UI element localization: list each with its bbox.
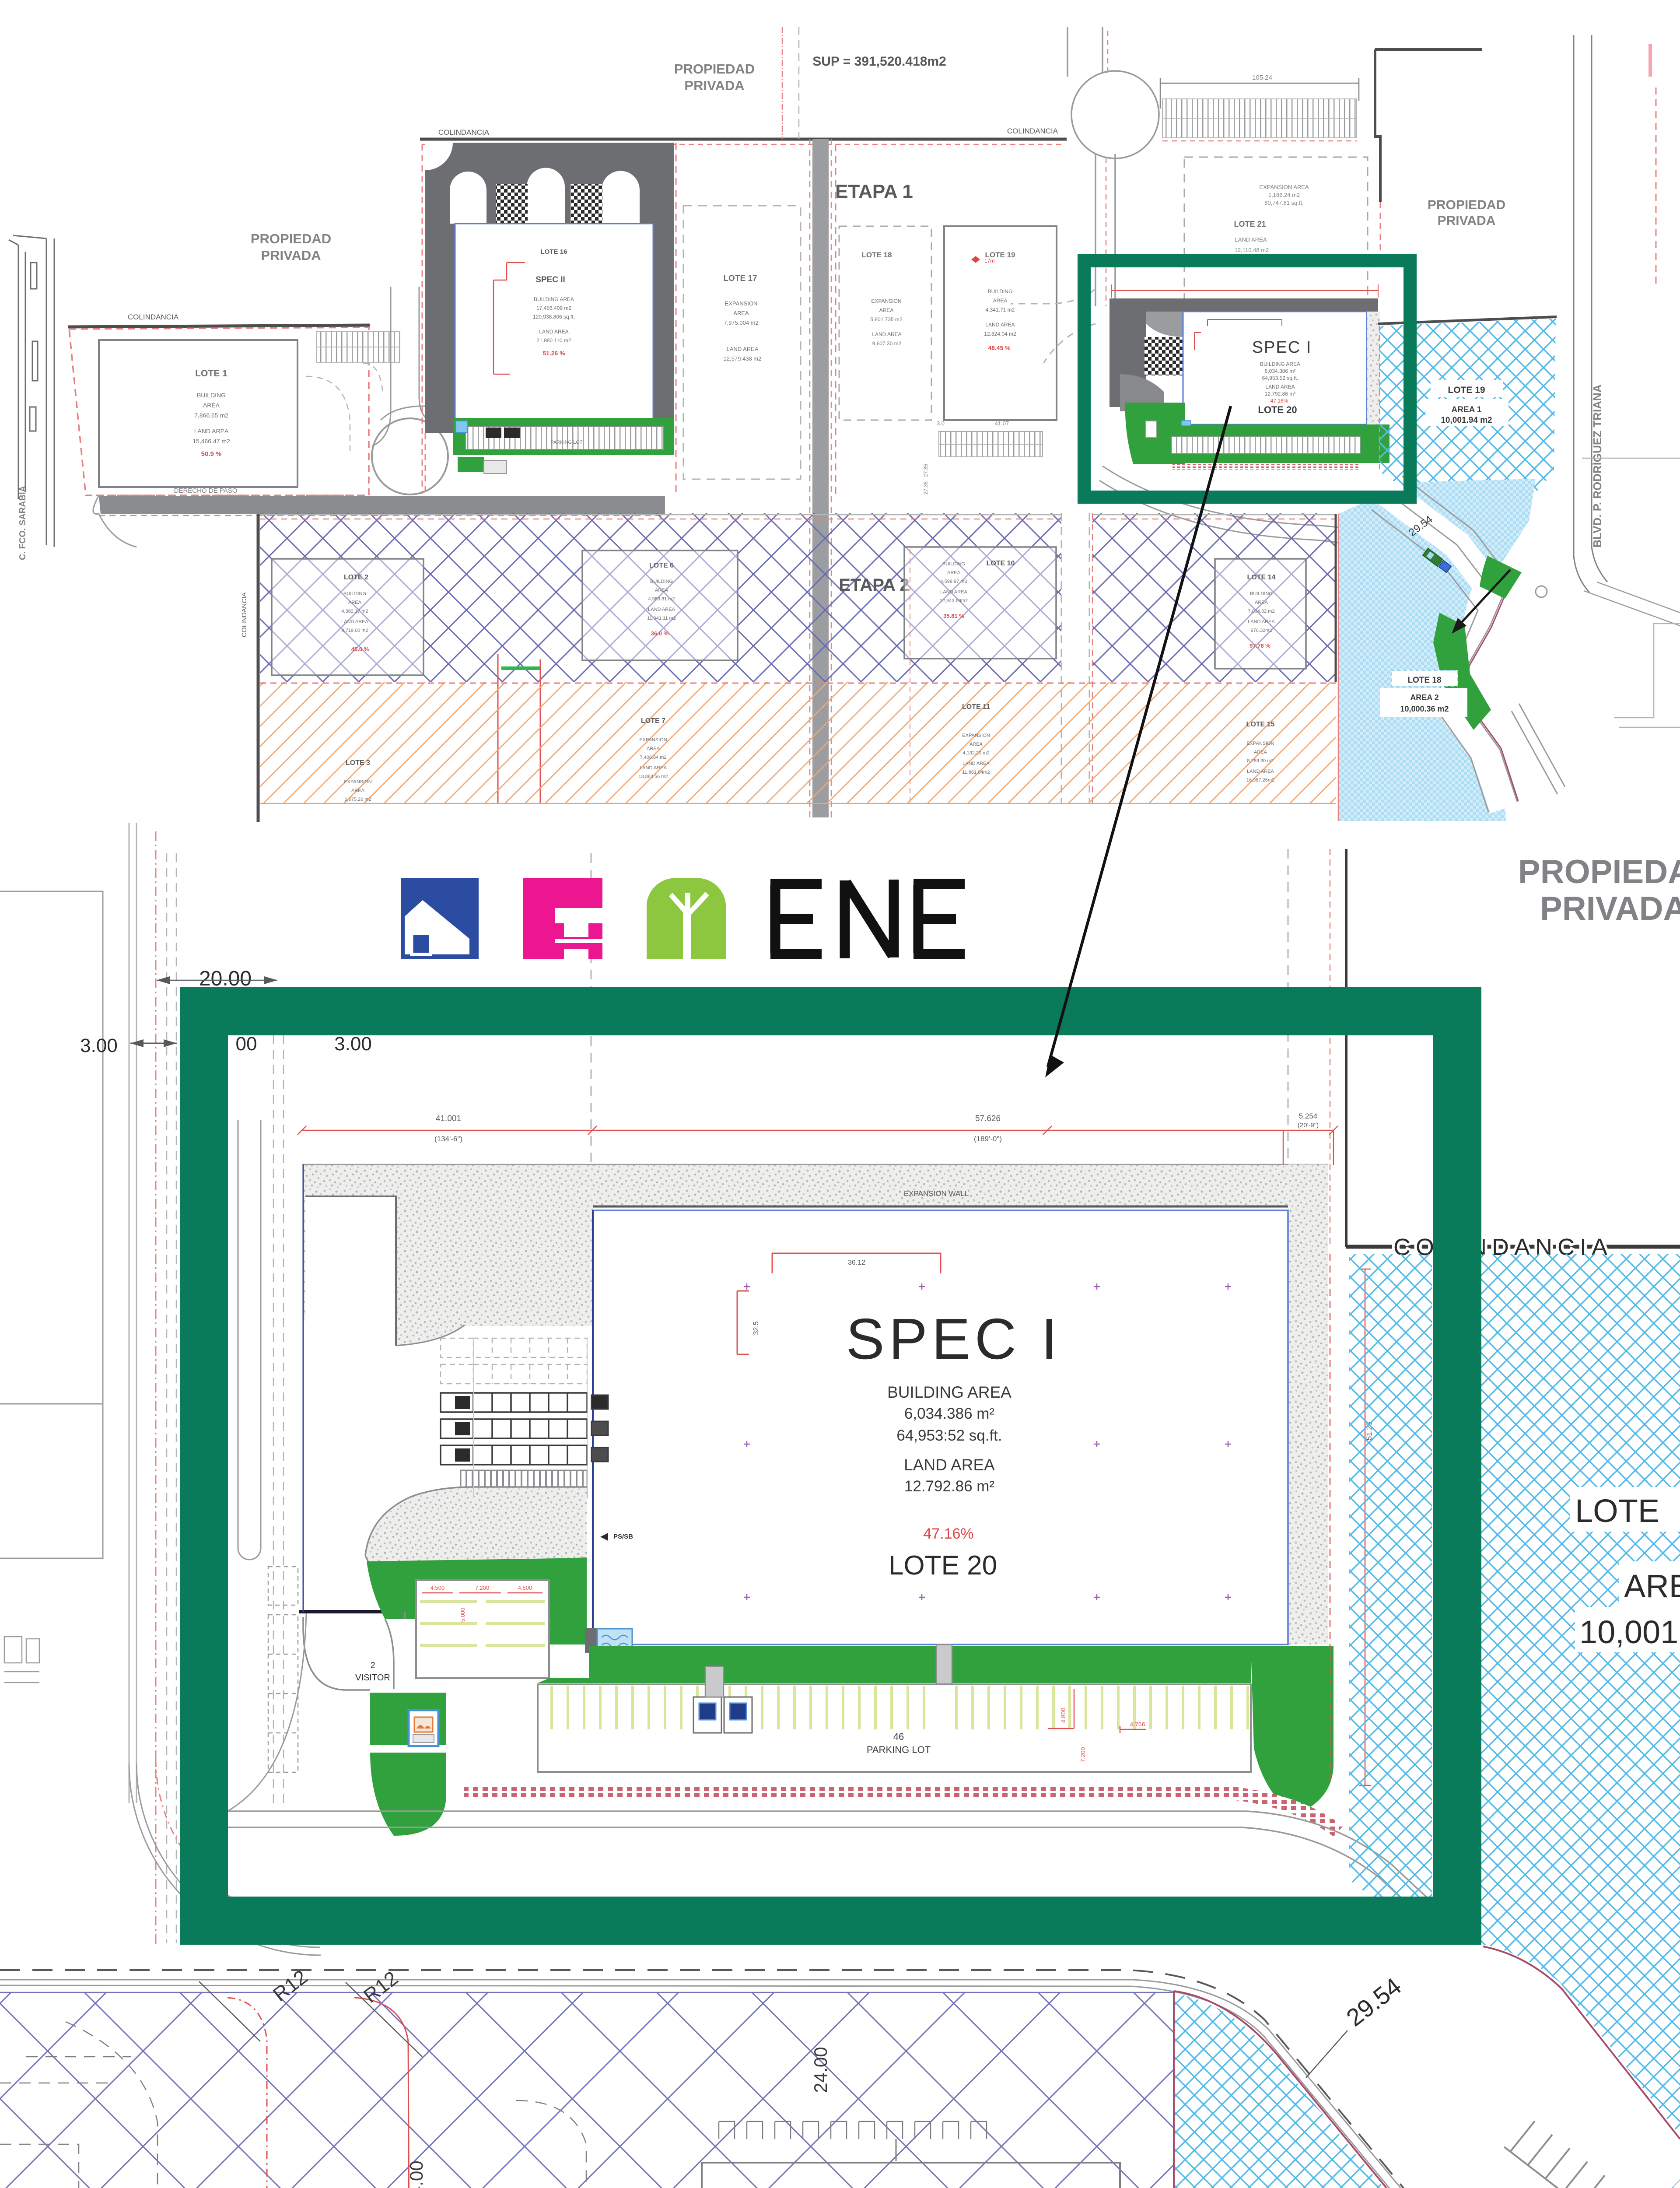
svg-text:47.16%: 47.16% [1270, 398, 1288, 404]
svg-text:3.00: 3.00 [334, 1033, 372, 1055]
svg-text:5.254: 5.254 [1299, 1112, 1318, 1120]
svg-text:LAND AREA: LAND AREA [194, 428, 229, 435]
svg-text:5,601.735 m2: 5,601.735 m2 [870, 316, 903, 323]
svg-text:ETAPA 1: ETAPA 1 [835, 181, 913, 202]
svg-text:PRIVADA: PRIVADA [261, 248, 321, 263]
svg-text:VISITOR: VISITOR [355, 1673, 390, 1683]
svg-text:AREA: AREA [1255, 600, 1268, 605]
svg-text:7,975.004 m2: 7,975.004 m2 [724, 319, 759, 326]
svg-text:80,747.81 sq.ft.: 80,747.81 sq.ft. [1264, 200, 1304, 206]
svg-text:4,132.20 m2: 4,132.20 m2 [962, 750, 989, 756]
svg-text:36.12: 36.12 [848, 1259, 865, 1266]
svg-text:97.78 %: 97.78 % [1249, 642, 1270, 649]
svg-text:PROPIEDAD: PROPIEDAD [1518, 853, 1680, 891]
svg-text:PRIVADA: PRIVADA [684, 78, 744, 93]
svg-text:3.00: 3.00 [80, 1035, 118, 1056]
svg-text:PARKING LOT: PARKING LOT [867, 1744, 931, 1755]
svg-text:1,186.24 m2: 1,186.24 m2 [1268, 192, 1300, 198]
svg-text:4.500: 4.500 [430, 1585, 445, 1591]
svg-text:EXPANSION: EXPANSION [344, 779, 371, 785]
svg-text:976.32m2: 976.32m2 [1251, 628, 1272, 633]
svg-text:57.626: 57.626 [975, 1114, 1001, 1123]
svg-text:35.81 %: 35.81 % [943, 613, 964, 619]
svg-text:41.001: 41.001 [436, 1114, 461, 1123]
svg-text:PROPIEDAD: PROPIEDAD [674, 61, 755, 77]
svg-text:13,883.56 m2: 13,883.56 m2 [638, 774, 668, 779]
svg-text:00: 00 [236, 1033, 257, 1055]
svg-text:LAND AREA: LAND AREA [539, 329, 568, 335]
svg-text:LOTE 15: LOTE 15 [1246, 721, 1275, 728]
svg-text:5.000: 5.000 [459, 1608, 466, 1622]
svg-text:SPEC I: SPEC I [846, 1307, 1062, 1371]
svg-text:DERECHO DE PASO: DERECHO DE PASO [174, 487, 238, 494]
svg-text:17m: 17m [984, 258, 994, 264]
svg-text:10,001.94 m2: 10,001.94 m2 [1441, 416, 1492, 425]
svg-text:9,607.30 m2: 9,607.30 m2 [872, 340, 902, 347]
svg-text:AREA: AREA [1254, 750, 1267, 755]
svg-text:AREA: AREA [879, 307, 894, 313]
svg-text:LOTE 17: LOTE 17 [723, 274, 757, 283]
svg-text:LAND AREA: LAND AREA [1247, 769, 1274, 774]
svg-text:AREA: AREA [203, 402, 220, 409]
svg-text:LAND AREA: LAND AREA [985, 322, 1015, 328]
svg-text:BLVD. P. RODRÍGUEZ TRIANA: BLVD. P. RODRÍGUEZ TRIANA [1591, 384, 1604, 547]
svg-text:LOTE 21: LOTE 21 [1234, 220, 1266, 228]
svg-text:AREA 2: AREA 2 [1410, 693, 1438, 702]
svg-text:PARKING LOT: PARKING LOT [550, 440, 582, 445]
svg-text:4.800: 4.800 [1060, 1708, 1067, 1723]
svg-text:6,034.386 m²: 6,034.386 m² [904, 1405, 994, 1422]
svg-text:7,004.32 m2: 7,004.32 m2 [1248, 609, 1274, 614]
svg-text:BUILDING AREA: BUILDING AREA [534, 296, 574, 302]
svg-text:EXPANSION WALL: EXPANSION WALL [904, 1189, 969, 1198]
svg-text:16,987.26m2: 16,987.26m2 [1246, 778, 1274, 783]
svg-text:BUILDING: BUILDING [197, 392, 226, 399]
svg-text:6,034.386 m²: 6,034.386 m² [1265, 368, 1296, 374]
svg-text:BUILDING: BUILDING [343, 591, 366, 596]
svg-text:AREA: AREA [351, 788, 365, 793]
svg-text:COLINDANCIA: COLINDANCIA [241, 593, 248, 638]
svg-text:15,466.47 m2: 15,466.47 m2 [192, 438, 230, 445]
svg-text:SUP = 391,520.418m2: SUP = 391,520.418m2 [812, 54, 946, 69]
svg-text:LAND AREA: LAND AREA [640, 765, 667, 771]
svg-text:50.9 %: 50.9 % [201, 450, 222, 458]
svg-text:LOTE 3: LOTE 3 [346, 759, 370, 767]
svg-text:7.200: 7.200 [475, 1585, 490, 1591]
svg-text:AREA: AREA [969, 742, 983, 747]
svg-text:LAND AREA: LAND AREA [904, 1456, 995, 1474]
svg-text:24.00: 24.00 [810, 2047, 831, 2093]
svg-text:PS/SB: PS/SB [613, 1533, 633, 1540]
svg-text:36.0 %: 36.0 % [651, 630, 669, 637]
svg-text:LOTE 20: LOTE 20 [889, 1550, 997, 1581]
svg-text:12.792.86 m²: 12.792.86 m² [904, 1478, 994, 1495]
svg-text:EXPANSION: EXPANSION [639, 737, 667, 743]
svg-text:41.07: 41.07 [995, 420, 1009, 427]
svg-text:(189'-0"): (189'-0") [974, 1135, 1002, 1143]
svg-text:BUILDING: BUILDING [650, 579, 673, 584]
svg-text:LOTE 11: LOTE 11 [962, 703, 990, 711]
svg-text:EXPANSION: EXPANSION [871, 298, 901, 304]
svg-text:ETAPA 2: ETAPA 2 [839, 575, 910, 595]
svg-text:AREA 1: AREA 1 [1452, 405, 1482, 414]
svg-text:COLINDANCIA: COLINDANCIA [1007, 127, 1058, 135]
svg-text:64,953:52 sq.ft.: 64,953:52 sq.ft. [896, 1427, 1002, 1444]
svg-text:12,792.86 m²: 12,792.86 m² [1265, 391, 1296, 397]
svg-text:4.500: 4.500 [518, 1585, 532, 1591]
svg-text:4.766: 4.766 [1130, 1721, 1145, 1728]
svg-text:EXPANSION: EXPANSION [725, 300, 758, 307]
svg-text:3.0: 3.0 [937, 420, 945, 427]
svg-text:4,598.97 m2: 4,598.97 m2 [940, 579, 967, 584]
svg-text:LAND AREA: LAND AREA [1265, 384, 1295, 390]
svg-text:105.24: 105.24 [1252, 74, 1272, 81]
svg-text:AREA: AREA [733, 310, 749, 316]
svg-text:7,866.65 m2: 7,866.65 m2 [194, 412, 228, 419]
svg-text:4,382.17 m2: 4,382.17 m2 [341, 609, 368, 614]
svg-text:48.45 %: 48.45 % [988, 344, 1011, 351]
svg-text:AREA: AREA [1624, 1568, 1680, 1604]
svg-text:PROPIEDAD: PROPIEDAD [1428, 198, 1505, 212]
svg-text:46: 46 [893, 1731, 904, 1742]
svg-text:27.35: 27.35 [923, 464, 929, 477]
svg-text:LOTE 2: LOTE 2 [344, 574, 368, 581]
svg-text:BUILDING: BUILDING [942, 561, 965, 567]
svg-text:AREA: AREA [647, 746, 660, 751]
svg-text:LAND AREA: LAND AREA [648, 607, 675, 612]
svg-text:COLINDANCIA: COLINDANCIA [438, 128, 490, 137]
svg-text:120,938.806 sq.ft.: 120,938.806 sq.ft. [533, 314, 575, 320]
svg-text:(20'-9"): (20'-9") [1298, 1122, 1319, 1129]
svg-text:4,989.81 m2: 4,989.81 m2 [648, 596, 675, 602]
svg-text:BUILDING: BUILDING [1250, 591, 1273, 596]
svg-text:LOTE 19: LOTE 19 [1448, 385, 1485, 395]
svg-text:AREA: AREA [348, 600, 362, 605]
svg-text:20.00: 20.00 [199, 967, 252, 990]
svg-text:LOTE: LOTE [1575, 1493, 1659, 1529]
svg-text:LOTE 7: LOTE 7 [641, 717, 665, 725]
svg-text:LAND AREA: LAND AREA [341, 619, 368, 624]
svg-text:BUILDING AREA: BUILDING AREA [1260, 361, 1300, 367]
svg-text:51.26 %: 51.26 % [542, 350, 565, 357]
svg-text:LAND AREA: LAND AREA [727, 346, 759, 352]
svg-text:LAND AREA: LAND AREA [872, 331, 901, 337]
svg-text:BUILDING: BUILDING [988, 288, 1013, 295]
svg-text:SPEC I: SPEC I [1252, 338, 1312, 357]
svg-text:4,341.71 m2: 4,341.71 m2 [986, 307, 1015, 313]
svg-text:9,719.00 m2: 9,719.00 m2 [341, 628, 368, 633]
svg-text:(134'-6"): (134'-6") [434, 1135, 462, 1143]
svg-text:LOTE 1: LOTE 1 [195, 368, 227, 379]
svg-text:C. FCO. SARABIA: C. FCO. SARABIA [18, 486, 28, 560]
svg-text:11,041.11 m2: 11,041.11 m2 [647, 616, 676, 621]
svg-text:AREA: AREA [655, 588, 668, 593]
svg-text:12,110.48 m2: 12,110.48 m2 [1235, 247, 1269, 253]
svg-text:BUILDING AREA: BUILDING AREA [887, 1383, 1011, 1401]
svg-text:EXPANSION: EXPANSION [962, 733, 990, 738]
svg-text:21,980.110 m2: 21,980.110 m2 [536, 337, 571, 344]
svg-text:7,406.84 m2: 7,406.84 m2 [640, 755, 666, 760]
svg-text:LOTE 14: LOTE 14 [1247, 574, 1276, 581]
svg-text:LAND AREA: LAND AREA [962, 761, 990, 766]
svg-text:AREA: AREA [947, 570, 961, 575]
svg-text:EXPANSION AREA: EXPANSION AREA [1259, 184, 1309, 190]
svg-text:27.35: 27.35 [923, 481, 929, 494]
svg-text:LAND AREA: LAND AREA [1235, 236, 1267, 243]
svg-text:10,000.36 m2: 10,000.36 m2 [1400, 705, 1449, 713]
svg-text:LAND AREA: LAND AREA [1248, 619, 1275, 624]
svg-text:LAND AREA: LAND AREA [940, 589, 967, 595]
svg-text:45.0 %: 45.0 % [351, 646, 369, 652]
svg-text:COLINDANCIA: COLINDANCIA [128, 313, 179, 321]
svg-text:LOTE 18: LOTE 18 [1407, 676, 1441, 685]
svg-text:17,456.409 m2: 17,456.409 m2 [536, 305, 571, 311]
svg-text:SPEC II: SPEC II [535, 275, 565, 284]
svg-text:7.200: 7.200 [1079, 1747, 1086, 1762]
svg-text:12,579.438 m2: 12,579.438 m2 [724, 355, 762, 362]
svg-text:EXPANSION: EXPANSION [1246, 741, 1274, 746]
svg-text:PROPIEDAD: PROPIEDAD [251, 231, 331, 246]
svg-text:12,843.69m2: 12,843.69m2 [940, 598, 968, 603]
svg-text:64,953.52 sq.ft.: 64,953.52 sq.ft. [1262, 375, 1298, 381]
svg-text:PRIVADA: PRIVADA [1540, 890, 1680, 927]
svg-text:6,675.26 m2: 6,675.26 m2 [344, 797, 371, 802]
svg-text:LOTE 6: LOTE 6 [649, 562, 674, 569]
svg-text:24.00: 24.00 [406, 2160, 427, 2188]
svg-text:LOTE 18: LOTE 18 [862, 251, 892, 259]
svg-text:8,269.30 m2: 8,269.30 m2 [1247, 758, 1274, 764]
svg-text:LOTE 10: LOTE 10 [987, 560, 1015, 567]
svg-text:LOTE 20: LOTE 20 [1258, 404, 1297, 415]
svg-text:47.16%: 47.16% [923, 1525, 973, 1542]
svg-text:2: 2 [370, 1661, 375, 1670]
svg-text:12,824.04 m2: 12,824.04 m2 [984, 331, 1016, 337]
svg-text:AREA: AREA [993, 298, 1008, 304]
svg-text:PRIVADA: PRIVADA [1438, 214, 1496, 228]
svg-text:10,001.9: 10,001.9 [1579, 1614, 1680, 1650]
svg-text:LOTE 16: LOTE 16 [541, 248, 567, 256]
svg-text:32.5: 32.5 [752, 1321, 760, 1335]
svg-text:11,861.04m2: 11,861.04m2 [962, 770, 990, 775]
